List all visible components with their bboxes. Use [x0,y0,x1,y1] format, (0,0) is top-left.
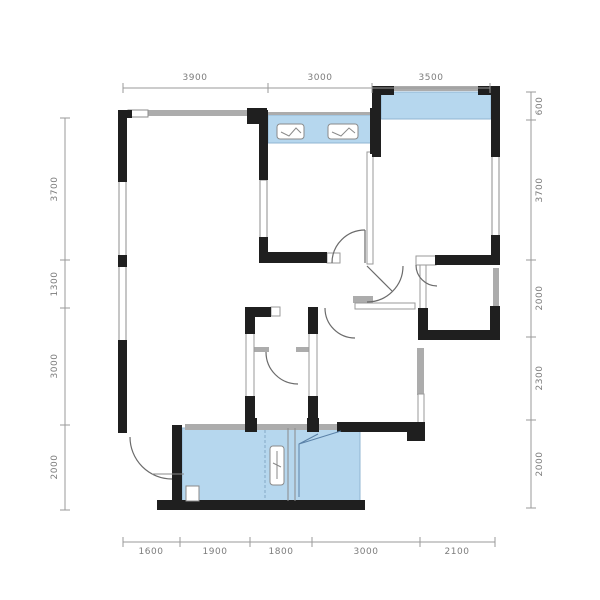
dim-label-bottom-1: 1600 [139,547,164,557]
dim-label-right-2: 3700 [535,178,545,203]
dim-label-top-3: 3500 [419,73,444,83]
glass-panel [381,92,491,119]
dim-label-left-4: 2000 [50,455,60,480]
glazing-panels [182,92,491,502]
dim-label-bottom-4: 3000 [354,547,379,557]
dim-label-left-3: 3000 [50,354,60,379]
dim-label-bottom-5: 2100 [445,547,470,557]
dim-label-bottom-2: 1900 [203,547,228,557]
windows [119,110,499,423]
window [119,180,126,256]
door-swing-arc-icon [325,308,355,338]
column-block [186,486,199,501]
window [260,180,267,238]
dim-label-right-3: 2000 [535,286,545,311]
window-sash-icon [277,124,304,139]
window [492,156,499,236]
dim-label-right-5: 2000 [535,452,545,477]
dim-label-right-4: 2300 [535,366,545,391]
window [119,266,126,341]
dim-label-top-1: 3900 [183,73,208,83]
dim-label-right-1: 600 [535,97,545,116]
window-sash-icon [270,446,284,485]
floor-plan-page: 3900 3000 3500 3700 1300 3000 2000 600 3… [0,0,600,600]
door-swing-arc-icon [266,352,298,384]
dim-label-bottom-3: 1800 [269,547,294,557]
dim-label-left-1: 3700 [50,177,60,202]
dim-label-left-2: 1300 [50,272,60,297]
dim-label-top-2: 3000 [308,73,333,83]
window-sash-icon [328,124,358,139]
door-swing-arc-icon [130,437,172,479]
floor-plan-drawing [0,0,600,600]
